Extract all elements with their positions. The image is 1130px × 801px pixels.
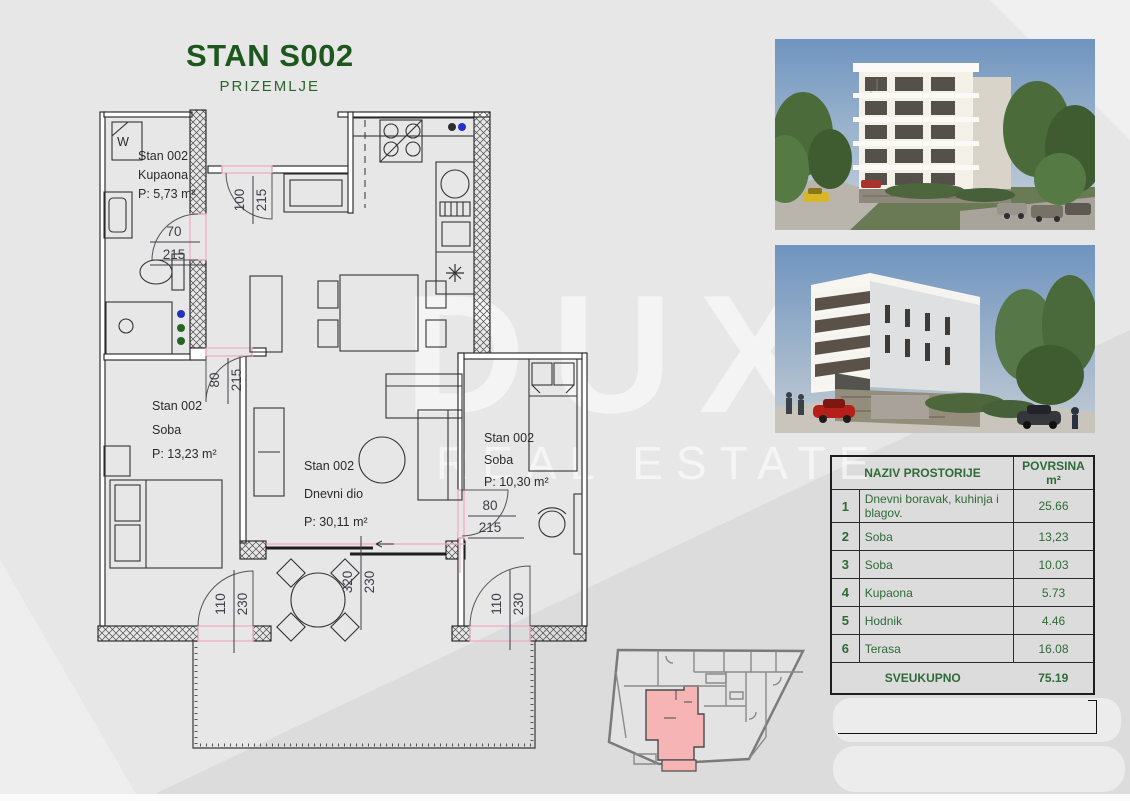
fridge-symbol [446, 264, 464, 282]
dim-terraceC-w: 320 [340, 571, 355, 594]
building-photo-side [775, 245, 1095, 433]
row-name: Soba [859, 523, 1013, 551]
row-num: 5 [831, 607, 859, 635]
row-area: 13,23 [1013, 523, 1094, 551]
bedroom1-area: P: 13,23 m² [152, 447, 217, 461]
table-row: 3 Soba 10.03 [831, 551, 1094, 579]
row-area: 25.66 [1013, 490, 1094, 523]
row-area: 5.73 [1013, 579, 1094, 607]
bedroom1-bed [104, 446, 222, 568]
page-bottom-edge [0, 794, 1130, 801]
bedroom2-unit: Stan 002 [484, 431, 534, 445]
page-subtitle: PRIZEMLJE [186, 78, 354, 95]
bedroom1-unit: Stan 002 [152, 399, 202, 413]
kitchen-fixtures [353, 118, 474, 294]
redaction-line [838, 733, 1096, 734]
redacted-block [833, 746, 1125, 792]
floorplan-sheet: DUX REAL ESTATE STAN S002 PRIZEMLJE [0, 0, 1130, 801]
row-num: 2 [831, 523, 859, 551]
table-row: 4 Kupaona 5.73 [831, 579, 1094, 607]
washer-label: W [117, 135, 129, 149]
table-row: 2 Soba 13,23 [831, 523, 1094, 551]
row-num: 1 [831, 490, 859, 523]
sofa [386, 374, 462, 500]
dim-bath-h: 215 [163, 247, 186, 262]
entry-closet [284, 174, 348, 212]
header-name: NAZIV PROSTORIJE [831, 456, 1013, 490]
floorplan-drawing: W Stan 002 Kupaona P: 5,73 m² Stan 002 S… [88, 108, 600, 770]
header-area: POVRSINA m² [1013, 456, 1094, 490]
bathroom-area: P: 5,73 m² [138, 187, 196, 201]
row-area: 10.03 [1013, 551, 1094, 579]
building-photo-front [775, 39, 1095, 230]
dim-terraceL-h: 230 [235, 593, 250, 616]
dim-bedroom2-h: 215 [479, 520, 502, 535]
page-title: STAN S002 [186, 38, 354, 74]
table-row: 5 Hodnik 4.46 [831, 607, 1094, 635]
dim-terraceL-w: 110 [213, 593, 228, 615]
row-name: Kupaona [859, 579, 1013, 607]
row-area: 4.46 [1013, 607, 1094, 635]
redacted-block [833, 698, 1121, 742]
table-header-row: NAZIV PROSTORIJE POVRSINA m² [831, 456, 1094, 490]
area-table: NAZIV PROSTORIJE POVRSINA m² 1 Dnevni bo… [830, 455, 1095, 695]
row-num: 3 [831, 551, 859, 579]
key-plan [606, 642, 816, 782]
dim-terraceR-w: 110 [489, 593, 504, 615]
table-row: 1 Dnevni boravak, kuhinja i blagov. 25.6… [831, 490, 1094, 523]
table-row: 6 Terasa 16.08 [831, 635, 1094, 663]
door-swings [152, 173, 530, 626]
dim-hall-h: 215 [229, 369, 244, 392]
coffee-table [359, 437, 405, 483]
dim-entry-h: 215 [254, 189, 269, 212]
table-total-row: SVEUKUPNO 75.19 [831, 663, 1094, 695]
row-area: 16.08 [1013, 635, 1094, 663]
living-unit: Stan 002 [304, 459, 354, 473]
dim-bedroom2-w: 80 [482, 498, 497, 513]
row-num: 6 [831, 635, 859, 663]
bedroom1-name: Soba [152, 423, 181, 437]
row-name: Terasa [859, 635, 1013, 663]
row-num: 4 [831, 579, 859, 607]
sliding-door [266, 541, 446, 554]
living-name: Dnevni dio [304, 487, 363, 501]
total-value: 75.19 [1013, 663, 1094, 695]
living-area: P: 30,11 m² [304, 515, 368, 529]
title-block: STAN S002 PRIZEMLJE [186, 38, 354, 95]
tv-cabinet [250, 276, 284, 496]
bedroom2-name: Soba [484, 453, 513, 467]
redaction-line [1096, 701, 1097, 734]
row-name: Hodnik [859, 607, 1013, 635]
bedroom2-area: P: 10,30 m² [484, 475, 549, 489]
row-name: Dnevni boravak, kuhinja i blagov. [859, 490, 1013, 523]
redaction-line [1088, 700, 1097, 701]
dining-set [318, 275, 446, 351]
dim-hall-w: 80 [207, 372, 222, 387]
dim-entry-w: 100 [232, 189, 247, 212]
dim-terraceR-h: 230 [511, 593, 526, 616]
row-name: Soba [859, 551, 1013, 579]
bathroom-unit: Stan 002 [138, 149, 188, 163]
bedroom2-furniture [529, 359, 582, 554]
dim-terraceC-h: 230 [362, 571, 377, 594]
terrace-railing [193, 641, 535, 748]
bathroom-name: Kupaona [138, 168, 188, 182]
dim-bath-w: 70 [166, 224, 181, 239]
total-label: SVEUKUPNO [831, 663, 1013, 695]
